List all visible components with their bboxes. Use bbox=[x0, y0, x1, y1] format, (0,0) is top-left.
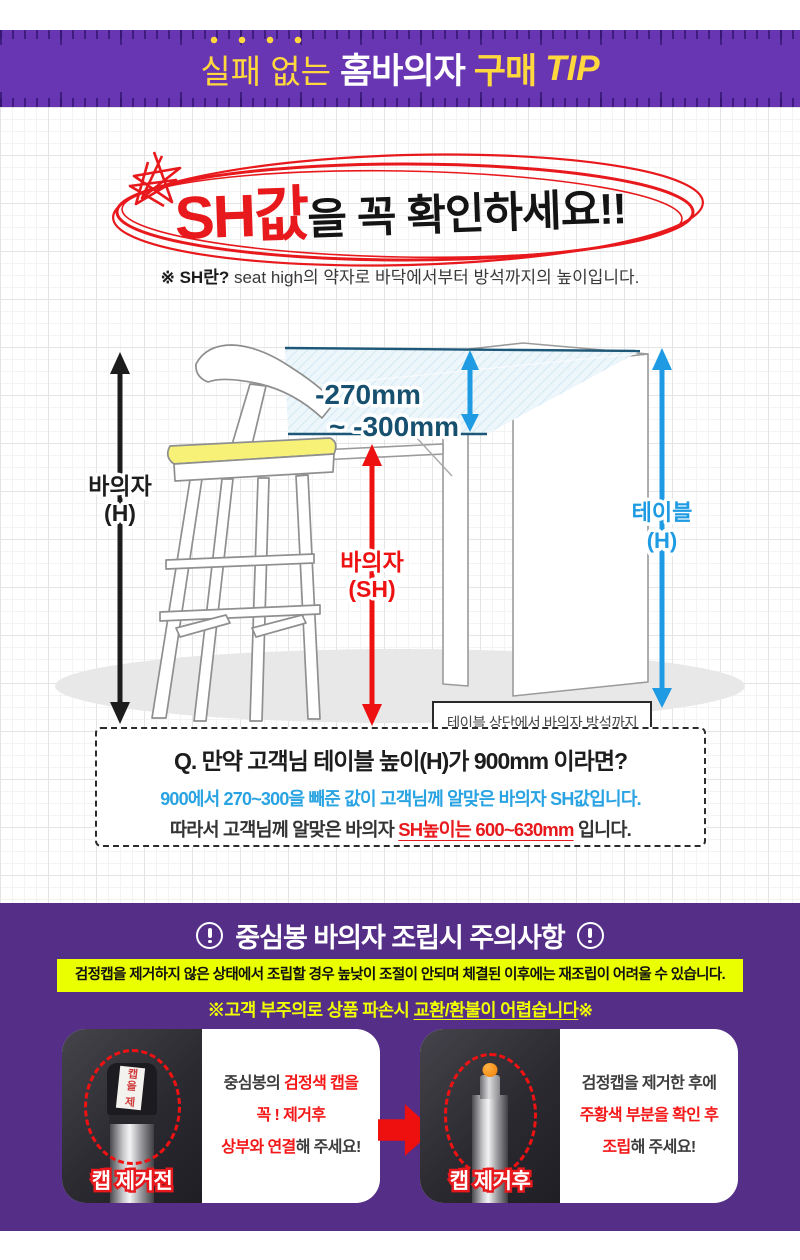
qa-answer-2: 따라서 고객님께 알맞은 바의자 SH높이는 600~630mm 입니다. bbox=[97, 816, 704, 842]
range-value-line1: -270mm bbox=[315, 379, 421, 410]
qa-box: Q. 만약 고객님 테이블 높이(H)가 900mm 이라면? 900에서 27… bbox=[95, 727, 706, 847]
title-part-product: 홈바의자 bbox=[340, 43, 465, 94]
title-part-buy: 구매 bbox=[474, 43, 536, 94]
diagram-area: -270mm ~ -300mm 바의자 (H) 바의자 (SH) 테이블 (H)… bbox=[0, 330, 800, 730]
warning-subtext-underline: 교환/환불이 어렵습니다 bbox=[414, 1000, 579, 1020]
grid-sheet: SH값을 꼭 확인하세요!! ※ SH란? seat high의 약자로 바닥에… bbox=[0, 107, 800, 903]
cap-after-photo: 캡 제거후 bbox=[420, 1029, 560, 1203]
dashed-circle-marker bbox=[84, 1049, 181, 1165]
cap-before-photo: 캡을 제 캡 제거전 bbox=[62, 1029, 202, 1203]
qa-answer-highlight: SH높이는 600~630mm bbox=[398, 819, 573, 840]
page-root: 실패 없는 홈바의자 구매 TIP SH값을 꼭 확인하세요!! ※ SH란? … bbox=[0, 0, 800, 1260]
table-h-label-unit: (H) bbox=[647, 528, 678, 553]
sh-definition-rest: seat high의 약자로 바닥에서부터 방석까지의 높이입니다. bbox=[229, 268, 639, 287]
title-part-lead: 실패 없는 bbox=[200, 45, 331, 93]
warning-subtext: ※고객 부주의로 상품 파손시 교환/환불이 어렵습니다※ bbox=[0, 997, 800, 1022]
warning-highlight: 검정캡을 제거하지 않은 상태에서 조립할 경우 높낮이 조절이 안되며 체결된… bbox=[57, 959, 743, 992]
sh-definition: ※ SH란? seat high의 약자로 바닥에서부터 방석까지의 높이입니다… bbox=[0, 263, 800, 288]
title-part-tip: TIP bbox=[545, 49, 599, 89]
table-h-label: 테이블 bbox=[632, 500, 693, 525]
headline-highlight: SH값 bbox=[174, 180, 309, 252]
caution-heading: 중심봉 바의자 조립시 주의사항 bbox=[235, 916, 564, 955]
cap-before-text: 중심봉의 검정색 캡을 꼭 ! 제거후 상부와 연결해 주세요! bbox=[202, 1029, 380, 1203]
title-emphasis-dots bbox=[210, 36, 320, 44]
header-band: 실패 없는 홈바의자 구매 TIP bbox=[0, 30, 800, 107]
cap-after-text: 검정캡을 제거한 후에 주황색 부분을 확인 후 조립해 주세요! bbox=[560, 1029, 738, 1203]
range-value-line2: ~ -300mm bbox=[329, 411, 459, 442]
cap-before-badge: 캡 제거전 bbox=[62, 1165, 202, 1195]
cap-after-badge: 캡 제거후 bbox=[420, 1165, 560, 1195]
chair-h-label-unit: (H) bbox=[104, 500, 136, 526]
qa-answer-1: 900에서 270~300을 빼준 값이 고객님께 알맞은 바의자 SH값입니다… bbox=[97, 785, 704, 811]
chair-h-label: 바의자 bbox=[88, 473, 151, 499]
qa-question: Q. 만약 고객님 테이블 높이(H)가 900mm 이라면? bbox=[97, 742, 704, 776]
warning-icon-right bbox=[577, 922, 604, 949]
headline-rest: 을 꼭 확인하세요!! bbox=[307, 185, 627, 244]
sh-definition-prefix: ※ SH란? bbox=[161, 268, 230, 287]
caution-section: 중심봉 바의자 조립시 주의사항 검정캡을 제거하지 않은 상태에서 조립할 경… bbox=[0, 903, 800, 1231]
page-title: 실패 없는 홈바의자 구매 TIP bbox=[0, 30, 800, 107]
measurement-diagram: -270mm ~ -300mm 바의자 (H) 바의자 (SH) 테이블 (H) bbox=[0, 330, 800, 730]
chair-sh-label-unit: (SH) bbox=[348, 576, 395, 602]
cap-before-card: 캡을 제 캡 제거전 중심봉의 검정색 캡을 꼭 ! 제거후 상부와 연결해 주… bbox=[62, 1029, 380, 1203]
caution-heading-row: 중심봉 바의자 조립시 주의사항 bbox=[0, 916, 800, 955]
chair-sh-label: 바의자 bbox=[340, 549, 403, 575]
cap-after-card: 캡 제거후 검정캡을 제거한 후에 주황색 부분을 확인 후 조립해 주세요! bbox=[420, 1029, 738, 1203]
warning-icon-left bbox=[196, 922, 223, 949]
dashed-circle-marker bbox=[444, 1053, 537, 1177]
